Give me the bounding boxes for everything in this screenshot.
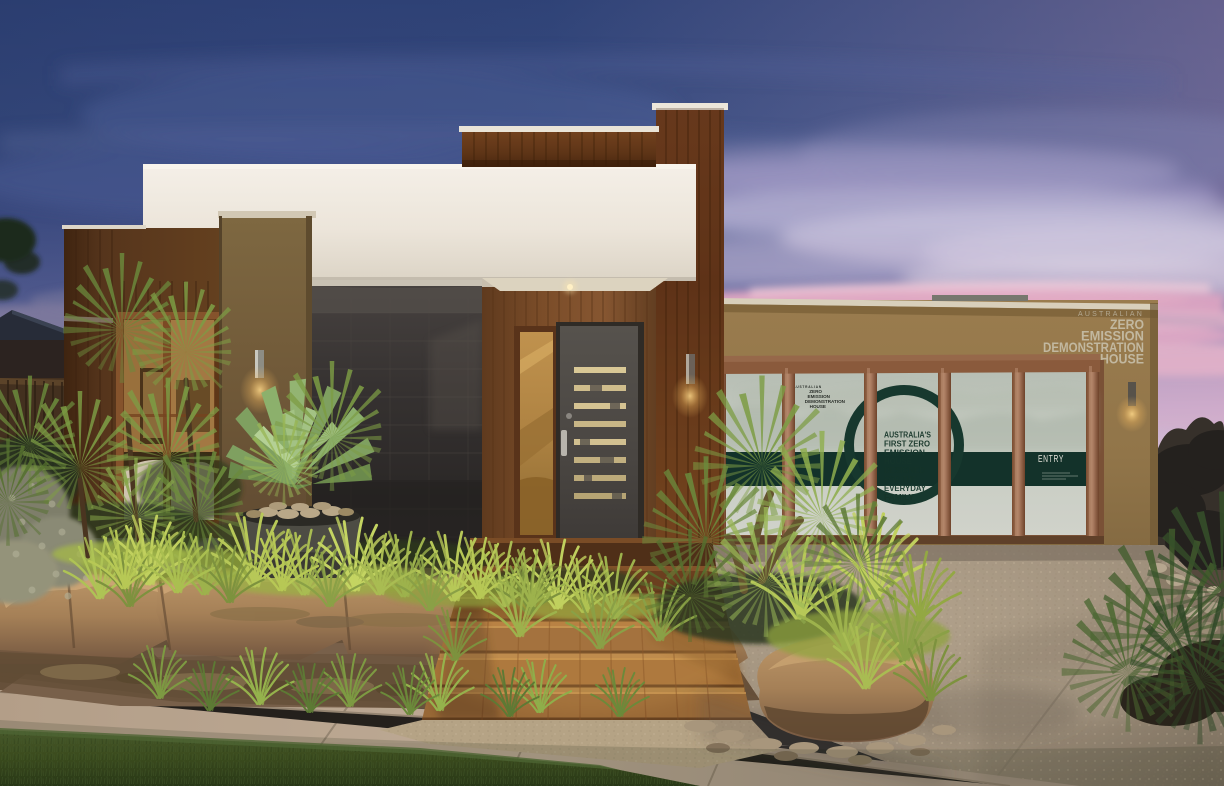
svg-text:HOUSE: HOUSE [810, 404, 826, 409]
svg-text:ENTRY: ENTRY [1038, 453, 1064, 465]
svg-text:HOUSE: HOUSE [1100, 351, 1144, 367]
svg-text:FAMILY: FAMILY [884, 492, 914, 502]
